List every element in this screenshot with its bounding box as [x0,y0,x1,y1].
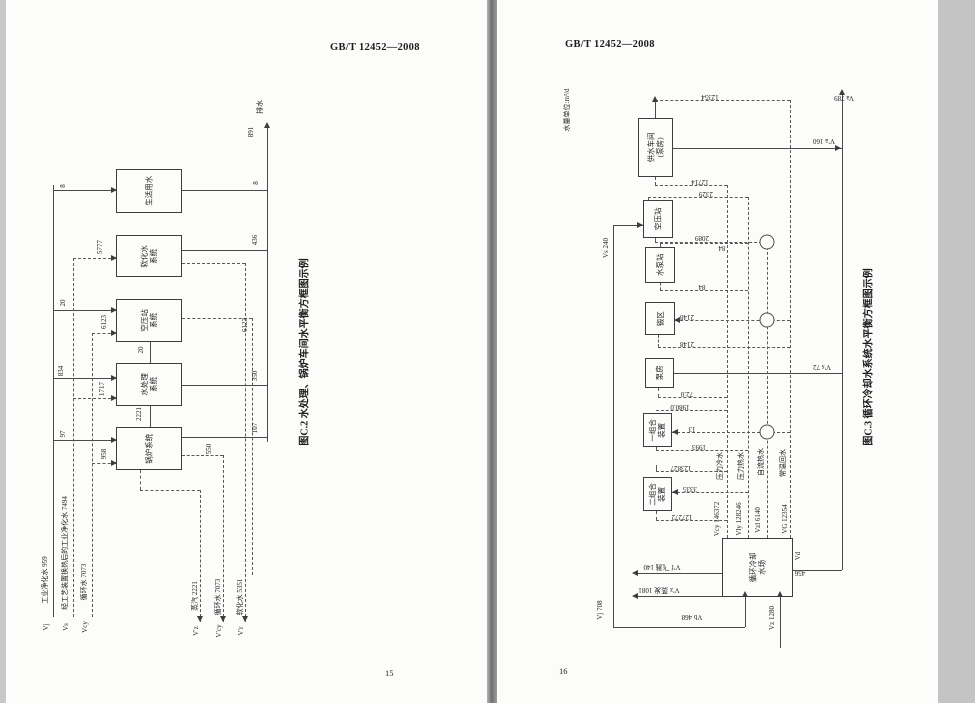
flow-line [638,573,722,574]
flow-line-dashdot [182,263,245,264]
flow-box: 生活用水 [116,169,182,213]
arrowhead [111,395,117,401]
junction-circle [760,235,775,250]
flow-line-dashdot [767,242,768,538]
flow-label: 436 [252,235,260,246]
arrowhead [111,307,117,313]
flow-label: Vb 468 [682,612,703,620]
flow-box-label: 供水车间 (泵房) [646,133,665,163]
flow-line [53,440,116,441]
flow-label: Vzl 6140 [755,507,763,533]
junction-circle [760,425,775,440]
flow-line-dashdot [656,410,727,411]
flow-label: V′s 72 [813,362,831,370]
flow-label: 常温回水 [780,449,788,477]
flow-line-dashdot [658,335,659,347]
arrowhead [835,145,841,151]
flow-label: 107 [252,423,260,434]
flow-label: 20 [60,300,68,307]
flow-line-dashdot [660,243,748,244]
flow-line-dashdot [140,490,200,491]
flow-label: 350 [252,371,260,382]
arrowhead [111,330,117,336]
standard-number-header-left: GB/T 12452—2008 [330,42,420,53]
flow-line-dashdot [200,490,201,622]
flow-box-label: 水泵站 [655,254,664,277]
flow-box-label: 水处理 系统 [140,373,159,396]
flow-line-dashdot [245,263,246,622]
scan-margin [938,0,975,703]
flow-line-dashdot [655,177,656,185]
flow-label: 工业净化水 959 [42,556,50,603]
flow-box-label: 二组合 装置 [648,483,667,506]
flow-line [53,310,116,311]
flow-label: 1980.0 [670,402,689,410]
flow-label: 5777 [97,240,105,254]
flow-box: 一组合 装置 [643,413,672,447]
flow-label: 3335 [683,484,697,492]
flow-line [182,385,267,386]
flow-line-dashdot [73,398,116,399]
flow-line-dashdot [648,197,748,198]
arrowhead [632,593,638,599]
flow-label: 550 [206,444,214,455]
flow-box: 空压站 系统 [116,299,182,342]
flow-label: 72.0 [681,389,693,397]
flow-label: 6123 [101,315,109,329]
flow-box-label: 循环冷却 水场 [748,553,767,583]
flow-line [53,378,116,379]
arrowhead [111,187,117,193]
flow-line-dashdot [182,455,223,456]
flow-line [182,190,267,191]
flow-line-dashdot [73,258,74,617]
flow-line-dashdot [658,347,790,348]
flow-box: 软化水 系统 [116,235,182,277]
flow-label: V′cy [216,624,224,637]
flow-label: 20 [138,347,146,354]
flow-box: 水泵站 [645,247,675,283]
flow-line [150,342,151,363]
arrowhead [264,122,270,128]
flow-line [53,185,54,617]
flow-line-dashdot [748,197,749,538]
flow-label: 8 [253,181,261,185]
flow-label: 2089 [695,233,709,241]
flow-box: 锻区 [645,302,675,335]
flow-label: 8 [60,184,68,188]
flow-label: 水量单位:m³/d [564,89,572,132]
flow-label: 97 [60,431,68,438]
flow-label: Vz 1280 [769,606,777,630]
flow-line [780,597,781,648]
flow-label: 经工艺装置换热后的工业净化水 7494 [62,496,70,610]
flow-label: 2148 [680,339,694,347]
flow-box-label: 锅炉系统 [144,434,153,464]
flow-label: 123827 [671,463,692,471]
flow-label: 压力热水 [738,452,746,480]
flow-line [638,596,722,597]
flow-line [267,128,268,442]
page-gutter [487,0,497,703]
flow-line-dashdot [73,258,116,259]
flow-label: 6123 [242,318,250,332]
arrowhead [111,375,117,381]
flow-box: 循环冷却 水场 [722,538,793,597]
arrowhead [632,570,638,576]
flow-label: Vd [795,552,803,561]
flow-label: 蒸汽 2221 [192,581,200,611]
flow-line-dashdot [656,511,657,520]
flow-line [150,406,151,427]
flow-box: 二组合 装置 [643,477,672,511]
arrowhead [672,489,678,495]
flow-line-dashdot [727,185,728,538]
arrowhead [637,222,643,228]
arrowhead [111,460,117,466]
junction-circle [760,313,775,328]
flow-line [613,627,745,628]
flow-line-dashdot [140,470,141,490]
flow-label: 循环水 7073 [215,579,223,616]
page-number-right: 16 [559,666,568,676]
flow-label: Vs [63,623,71,631]
flow-box-label: 一组合 装置 [648,419,667,442]
flow-label: 循环水 7073 [81,564,89,601]
flow-label: 127272 [672,512,693,520]
flow-box: 锅炉系统 [116,427,182,470]
flow-label: 891 [248,127,256,138]
flow-box-label: 泵房 [655,366,664,381]
flow-box-label: 锻区 [655,311,664,326]
flow-label: V′a 160 [813,136,835,144]
flow-label: Vly 128246 [736,502,744,535]
page-number-left: 15 [385,668,394,678]
flow-label: 13 [689,424,696,432]
flow-line-dashdot [252,318,253,575]
arrowhead [220,616,226,622]
flow-label: V′z 蒸发 1081 [638,585,679,593]
arrowhead [111,437,117,443]
flow-box-label: 生活用水 [144,176,153,206]
flow-line [182,250,267,251]
flow-box: 供水车间 (泵房) [638,118,673,177]
figure-c2-caption: 图C.2 水处理、锅炉车间水平衡方框图示例 [296,258,311,445]
flow-label: Vcy 146372 [714,502,722,536]
flow-label: 958 [101,449,109,460]
flow-label: 2148 [680,312,694,320]
flow-label: Va 789 [834,93,854,101]
flow-label: V′f 飞溅 140 [644,562,681,570]
flow-label: 834 [58,366,66,377]
flow-label: 456 [795,568,806,576]
flow-label: 自流热水 [758,448,766,476]
flow-label: 1993 [692,442,706,450]
flow-label: Vcy [82,621,90,633]
flow-line [672,373,842,374]
arrowhead [111,255,117,261]
flow-line [745,597,746,627]
flow-label: VG 12354 [782,504,790,533]
flow-line [53,190,116,191]
flow-line-dashdot [92,333,93,617]
flow-line [655,100,656,118]
arrowhead [672,429,678,435]
standard-number-header-right: GB/T 12452—2008 [565,39,655,50]
flow-line-dashdot [660,283,661,290]
flow-label: Vj [43,624,51,631]
flow-line [673,148,842,149]
flow-label: 1717 [99,382,107,396]
document-spread: GB/T 12452—2008 GB/T 12452—2008 图C.2 水处理… [0,0,975,703]
flow-box-label: 软化水 系统 [140,245,159,268]
flow-label: 排水 [257,100,265,114]
flow-box: 空压站 [643,200,673,238]
arrowhead [242,616,248,622]
flow-label: 84 [719,243,726,251]
flow-line-dashdot [655,100,790,101]
flow-label: Vs 240 [603,238,611,258]
figure-c3-caption: 图C.3 循环冷却水系统水平衡方框图示例 [860,268,875,445]
flow-label: 压力冷水 [717,452,725,480]
flow-line-dashdot [658,388,659,397]
flow-line-dashdot [223,455,224,622]
flow-box-label: 空压站 [653,208,662,231]
arrowhead [652,96,658,102]
flow-line [842,95,843,570]
flow-label: 软化水 5351 [237,579,245,616]
arrowhead [197,616,203,622]
flow-line [182,437,267,438]
flow-label: Vj 708 [597,600,605,619]
flow-label: 2221 [136,407,144,421]
arrowhead [742,591,748,597]
flow-label: V′r [238,627,246,636]
flow-box-label: 空压站 系统 [140,309,159,332]
flow-label: 2329 [699,189,713,197]
flow-line [613,225,614,627]
flow-box: 泵房 [645,358,674,388]
flow-line-dashdot [790,100,791,538]
flow-box: 水处理 系统 [116,363,182,406]
arrowhead [777,591,783,597]
page-15 [6,0,487,703]
flow-label: 12354 [701,92,719,100]
flow-label: V′z [193,626,201,636]
flow-label: 12714 [691,177,709,185]
flow-label: 84 [699,282,706,290]
